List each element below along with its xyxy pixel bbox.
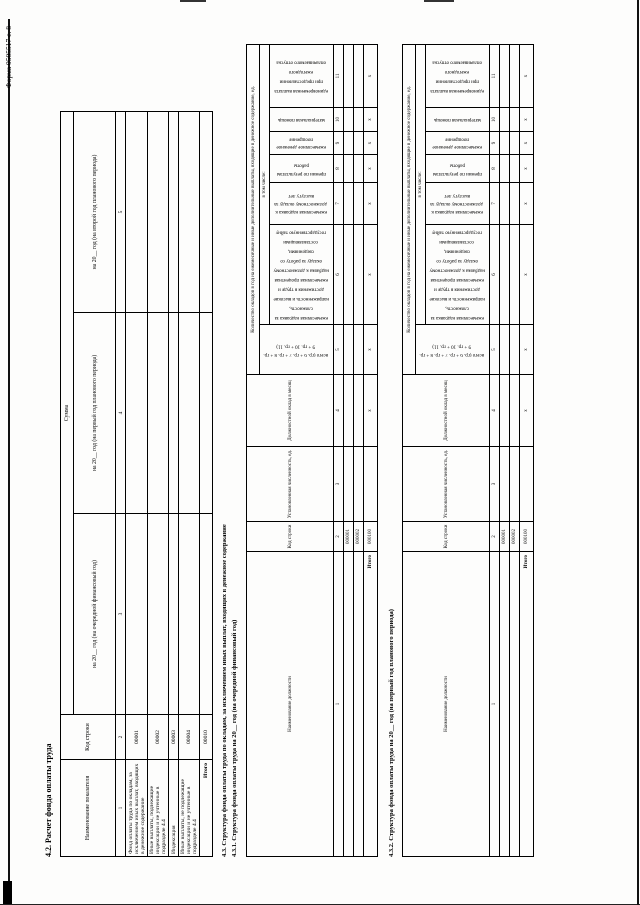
column-number: 8	[334, 155, 344, 183]
col-header-salary: Должностной оклад в месяц	[247, 375, 334, 447]
col-header-year-plan2: на 20__ год (на второй год планового пер…	[74, 111, 116, 312]
col-header-salaries-per-year-group: Количество окладов в год на ежемесячные …	[403, 44, 416, 374]
col-header-total-formula: всего (гр. 6 + гр. 7 + гр. 8 + гр. 9 + г…	[416, 325, 490, 375]
empty-cell	[500, 225, 510, 325]
vertical-text: единовременная выплата при предоставлени…	[273, 57, 329, 95]
column-number: 1	[116, 760, 126, 857]
col-header-including: в том числе:	[416, 44, 426, 324]
empty-cell	[344, 447, 354, 522]
column-number: 9	[334, 132, 344, 155]
empty-cell	[510, 44, 520, 107]
empty-cell	[200, 514, 213, 715]
table-row: 000002	[510, 44, 520, 856]
vertical-text: всего (гр. 6 + гр. 7 + гр. 8 + гр. 9 + г…	[263, 341, 329, 358]
col-header-complexity-allowance: ежемесячная надбавка за сложность, напря…	[426, 225, 490, 325]
column-number: 6	[334, 225, 344, 325]
col-header-performance-bonus: премии по результатам работы	[270, 155, 334, 183]
empty-cell	[510, 183, 520, 225]
empty-cell	[354, 132, 364, 155]
x-mark-cell: х	[520, 225, 534, 325]
vertical-text: всего (гр. 6 + гр. 7 + гр. 8 + гр. 9 + г…	[419, 341, 485, 358]
vertical-text: премии по результатам работы	[429, 160, 485, 177]
empty-cell	[148, 313, 169, 514]
empty-cell	[500, 155, 510, 183]
column-number: 10	[490, 108, 500, 132]
col-header-row-code: Код строки	[61, 715, 116, 760]
empty-cell	[126, 111, 148, 312]
column-number: 10	[334, 108, 344, 132]
empty-cell	[510, 375, 520, 447]
table-row: Фонд оплаты труда по окладам, за исключе…	[126, 111, 148, 856]
col-header-monthly-incentive: ежемесячное денежное поощрение	[426, 132, 490, 155]
col-header-vacation-payment: единовременная выплата при предоставлени…	[426, 44, 490, 107]
column-numbers-row: 1 2 3 4 5 6 7 8 9 10 11	[490, 44, 500, 856]
empty-cell	[179, 514, 200, 715]
column-number: 4	[490, 375, 500, 447]
table-row: 000002	[354, 44, 364, 856]
table-row: 000001	[344, 44, 354, 856]
col-header-salary: Должностной оклад в месяц	[403, 375, 490, 447]
column-number: 7	[490, 183, 500, 225]
empty-cell	[126, 514, 148, 715]
empty-cell	[344, 552, 354, 857]
form-number-label: Форма 0505517 с. 8	[4, 26, 13, 88]
x-mark-cell: х	[364, 44, 378, 107]
column-number: 4	[116, 313, 126, 514]
column-number: 6	[490, 225, 500, 325]
col-header-material-aid: материальная помощь	[270, 108, 334, 132]
empty-cell	[354, 44, 364, 107]
column-number: 11	[334, 44, 344, 107]
total-row: Итого 000100 х х х х х х х х	[364, 44, 378, 856]
x-mark-cell: х	[364, 155, 378, 183]
column-number: 3	[334, 447, 344, 522]
empty-cell	[344, 375, 354, 447]
wage-structure-table-432: Наименование должности Код строки Устано…	[402, 44, 534, 857]
empty-cell	[344, 108, 354, 132]
col-header-position: Наименование должности	[247, 552, 334, 857]
col-header-staff-count: Установленная численность, ед.	[247, 447, 334, 522]
table-row: Иные выплаты, подлежащие индексации и не…	[148, 111, 169, 856]
col-header-year-next: на 20__ год (на очередной финансовый год…	[74, 514, 116, 715]
column-numbers-row: 1 2 3 4 5 6 7 8 9 10 11	[334, 44, 344, 856]
col-header-total-formula: всего (гр. 6 + гр. 7 + гр. 8 + гр. 9 + г…	[260, 325, 334, 375]
column-number: 7	[334, 183, 344, 225]
empty-cell	[354, 375, 364, 447]
scanned-page: Форма 0505517 с. 8 4.2. Расчет фонда опл…	[0, 0, 640, 905]
col-header-position: Наименование должности	[403, 552, 490, 857]
empty-cell	[500, 108, 510, 132]
col-header-vacation-payment: единовременная выплата при предоставлени…	[270, 44, 334, 107]
x-mark-cell: х	[520, 325, 534, 375]
total-label: Итого	[364, 552, 378, 857]
column-number: 5	[490, 325, 500, 375]
empty-cell	[169, 514, 179, 715]
empty-cell	[500, 132, 510, 155]
empty-cell	[179, 111, 200, 312]
total-row: Итого 00010	[200, 111, 213, 856]
col-header-complexity-allowance: ежемесячная надбавка за сложность, напря…	[270, 225, 334, 325]
row-code: 000001	[500, 522, 510, 552]
column-number: 1	[334, 552, 344, 857]
x-mark-cell: х	[364, 325, 378, 375]
empty-cell	[500, 552, 510, 857]
column-number: 5	[334, 325, 344, 375]
page-edge-line-bottom	[637, 0, 639, 905]
empty-cell	[354, 155, 364, 183]
column-number: 2	[116, 715, 126, 760]
col-header-row-code: Код строки	[403, 522, 490, 552]
empty-cell	[510, 132, 520, 155]
empty-cell	[500, 447, 510, 522]
col-header-monthly-incentive: ежемесячное денежное поощрение	[270, 132, 334, 155]
empty-cell	[344, 225, 354, 325]
empty-cell	[344, 132, 354, 155]
empty-cell	[126, 313, 148, 514]
x-mark-cell: х	[520, 132, 534, 155]
column-number: 8	[490, 155, 500, 183]
row-code: 000002	[510, 522, 520, 552]
row-code: 000002	[354, 522, 364, 552]
col-header-seniority-allowance: ежемесячная надбавка к должностному окла…	[426, 183, 490, 225]
empty-cell	[500, 44, 510, 107]
landscape-content: Форма 0505517 с. 8 4.2. Расчет фонда опл…	[0, 0, 640, 905]
vertical-text: материальная помощь	[273, 116, 329, 124]
empty-cell	[169, 313, 179, 514]
empty-cell	[344, 183, 354, 225]
scan-artifact-blob	[3, 881, 12, 905]
empty-cell	[354, 325, 364, 375]
column-number: 5	[116, 111, 126, 312]
empty-cell	[354, 225, 364, 325]
column-numbers-row: 1 2 3 4 5	[116, 111, 126, 856]
column-number: 4	[334, 375, 344, 447]
empty-cell	[200, 313, 213, 514]
row-code: 00003	[169, 715, 179, 760]
empty-cell	[200, 111, 213, 312]
total-row: Итого 000100 х х х х х х х х	[520, 44, 534, 856]
col-header-seniority-allowance: ежемесячная надбавка к должностному окла…	[270, 183, 334, 225]
empty-cell	[520, 447, 534, 522]
section-4-3-title: 4.3. Структура фонда оплаты труда по окл…	[221, 524, 228, 857]
empty-cell	[354, 447, 364, 522]
vertical-text: ежемесячное денежное поощрение	[429, 136, 485, 151]
table-row: Индексация 00003	[169, 111, 179, 856]
empty-cell	[354, 108, 364, 132]
vertical-text: ежемесячная надбавка к должностному окла…	[429, 192, 485, 216]
col-header-material-aid: материальная помощь	[426, 108, 490, 132]
scan-artifact-dash	[180, 0, 206, 2]
section-4-2-title: 4.2. Расчет фонда оплаты труда	[44, 744, 53, 857]
column-number: 1	[490, 552, 500, 857]
column-number: 3	[490, 447, 500, 522]
empty-cell	[148, 111, 169, 312]
row-code: 00001	[126, 715, 148, 760]
col-header-staff-count: Установленная численность, ед.	[403, 447, 490, 522]
empty-cell	[354, 183, 364, 225]
empty-cell	[510, 108, 520, 132]
total-code: 00010	[200, 715, 213, 760]
scan-artifact-dash	[424, 0, 454, 2]
x-mark-cell: х	[520, 155, 534, 183]
empty-cell	[510, 447, 520, 522]
col-header-performance-bonus: премии по результатам работы	[426, 155, 490, 183]
row-label: Иные выплаты, не подлежащие индексации и…	[179, 760, 200, 857]
x-mark-cell: х	[364, 132, 378, 155]
empty-cell	[510, 155, 520, 183]
row-label: Иные выплаты, подлежащие индексации и не…	[148, 760, 169, 857]
empty-cell	[500, 375, 510, 447]
row-code: 00002	[148, 715, 169, 760]
x-mark-cell: х	[520, 183, 534, 225]
column-number: 3	[116, 514, 126, 715]
col-header-indicator: Наименование показателя	[61, 760, 116, 857]
empty-cell	[344, 44, 354, 107]
col-header-salaries-per-year-group: Количество окладов в год на ежемесячные …	[247, 44, 260, 374]
row-code: 000001	[344, 522, 354, 552]
wage-structure-table-431: Наименование должности Код строки Устано…	[246, 44, 378, 857]
x-mark-cell: х	[364, 225, 378, 325]
empty-cell	[169, 111, 179, 312]
empty-cell	[510, 225, 520, 325]
x-mark-cell: х	[364, 108, 378, 132]
col-header-row-code: Код строки	[247, 522, 334, 552]
empty-cell	[148, 514, 169, 715]
total-label: Итого	[200, 760, 213, 857]
x-mark-cell: х	[364, 183, 378, 225]
empty-cell	[510, 325, 520, 375]
table-row: Иные выплаты, не подлежащие индексации и…	[179, 111, 200, 856]
section-4-3-2-title: 4.3.2. Структура фонда оплаты труда на 2…	[388, 609, 395, 857]
vertical-text: ежемесячная надбавка к должностному окла…	[273, 192, 329, 216]
table-row: 000001	[500, 44, 510, 856]
x-mark-cell: х	[520, 108, 534, 132]
row-label: Фонд оплаты труда по окладам, за исключе…	[126, 760, 148, 857]
section-4-3-1-title: 4.3.1. Структура фонда оплаты труда на 2…	[231, 620, 238, 857]
total-label: Итого	[520, 552, 534, 857]
col-header-year-plan1: на 20__ год (на первый год планового пер…	[74, 313, 116, 514]
vertical-text: единовременная выплата при предоставлени…	[429, 57, 485, 95]
vertical-text: материальная помощь	[429, 116, 485, 124]
empty-cell	[344, 155, 354, 183]
col-header-sum: Сумма	[61, 111, 74, 714]
empty-cell	[344, 325, 354, 375]
vertical-text: ежемесячная надбавка за сложность, напря…	[429, 227, 485, 322]
x-mark-cell: х	[520, 375, 534, 447]
vertical-text: премии по результатам работы	[273, 160, 329, 177]
empty-cell	[364, 447, 378, 522]
x-mark-cell: х	[364, 375, 378, 447]
row-code: 00004	[179, 715, 200, 760]
page-edge-line-top	[8, 19, 10, 905]
vertical-text: ежемесячная надбавка за сложность, напря…	[273, 227, 329, 322]
x-mark-cell: х	[520, 44, 534, 107]
column-number: 9	[490, 132, 500, 155]
empty-cell	[500, 325, 510, 375]
column-number: 2	[334, 522, 344, 552]
total-code: 000100	[364, 522, 378, 552]
column-number: 11	[490, 44, 500, 107]
total-code: 000100	[520, 522, 534, 552]
empty-cell	[179, 313, 200, 514]
empty-cell	[500, 183, 510, 225]
empty-cell	[510, 552, 520, 857]
vertical-text: ежемесячное денежное поощрение	[273, 136, 329, 151]
empty-cell	[354, 552, 364, 857]
row-label: Индексация	[169, 760, 179, 857]
column-number: 2	[490, 522, 500, 552]
col-header-including: в том числе:	[260, 44, 270, 324]
wage-fund-calculation-table: Наименование показателя Код строки Сумма…	[60, 111, 213, 857]
